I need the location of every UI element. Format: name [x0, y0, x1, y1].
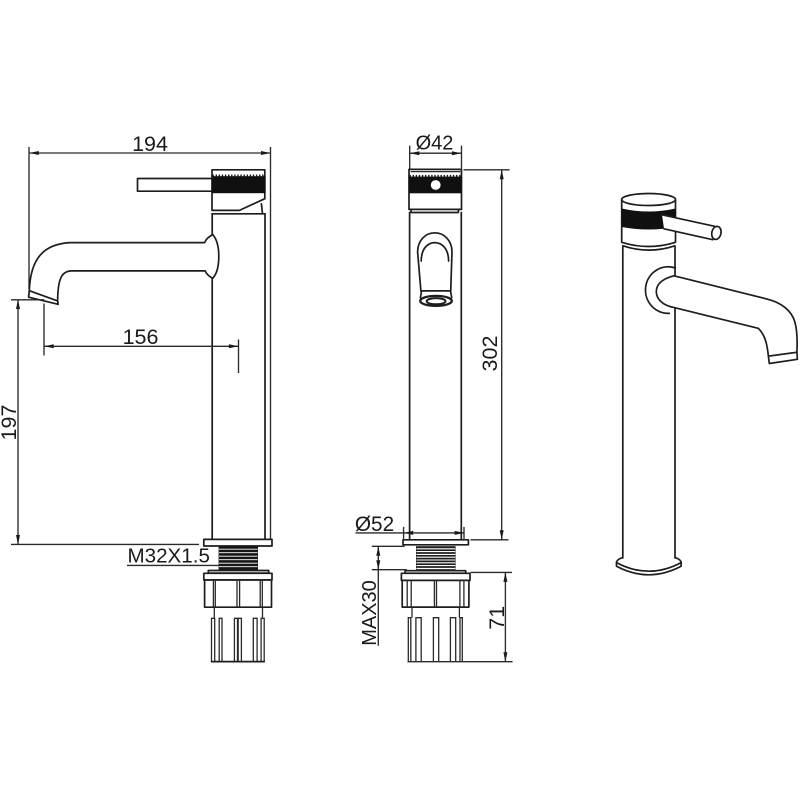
- svg-text:Ø42: Ø42: [416, 133, 454, 155]
- svg-text:302: 302: [478, 336, 502, 372]
- svg-text:156: 156: [123, 325, 159, 349]
- svg-text:M32X1.5: M32X1.5: [128, 545, 210, 568]
